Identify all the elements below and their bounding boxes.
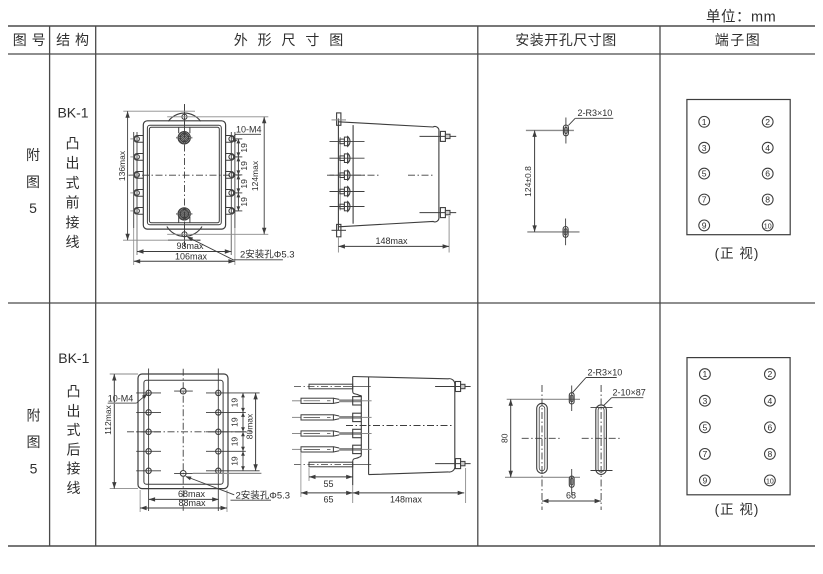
svg-text:2-R3×10: 2-R3×10	[578, 108, 613, 118]
svg-text:图 号: 图 号	[13, 32, 46, 48]
svg-text:9: 9	[703, 476, 708, 486]
svg-text:10: 10	[764, 224, 772, 231]
svg-text:7: 7	[702, 195, 707, 205]
svg-text:安装开孔尺寸图: 安装开孔尺寸图	[515, 32, 617, 48]
svg-text:124±0.8: 124±0.8	[523, 166, 533, 197]
svg-text:1: 1	[703, 369, 708, 379]
svg-text:136max: 136max	[117, 150, 127, 181]
svg-text:3: 3	[702, 143, 707, 153]
svg-text:5: 5	[702, 169, 707, 179]
svg-text:5: 5	[30, 461, 38, 477]
svg-text:2安装孔Φ5.3: 2安装孔Φ5.3	[240, 249, 295, 261]
svg-text:线: 线	[67, 480, 81, 496]
svg-text:出: 出	[66, 155, 80, 171]
svg-text:4: 4	[768, 396, 773, 406]
svg-text:19: 19	[239, 143, 249, 153]
svg-text:112max: 112max	[103, 404, 113, 434]
svg-text:附: 附	[27, 408, 41, 424]
svg-text:单位：mm: 单位：mm	[706, 9, 776, 26]
svg-text:(正 视): (正 视)	[715, 246, 760, 261]
svg-text:凸: 凸	[67, 384, 81, 400]
svg-text:80: 80	[499, 433, 509, 443]
svg-text:10-M4: 10-M4	[108, 394, 134, 404]
svg-text:端子图: 端子图	[715, 32, 762, 48]
svg-text:19: 19	[230, 398, 240, 408]
svg-text:88max: 88max	[178, 498, 206, 508]
svg-text:BK-1: BK-1	[57, 105, 88, 121]
svg-text:接: 接	[67, 461, 81, 477]
svg-text:6: 6	[765, 169, 770, 179]
svg-text:前: 前	[66, 195, 80, 211]
svg-text:10-M4: 10-M4	[236, 124, 262, 134]
svg-text:7: 7	[703, 449, 708, 459]
svg-text:图: 图	[27, 434, 41, 450]
svg-text:19: 19	[239, 197, 249, 207]
svg-text:线: 线	[66, 234, 80, 250]
svg-text:2: 2	[768, 369, 773, 379]
svg-text:98max: 98max	[176, 241, 204, 251]
svg-text:3: 3	[703, 396, 708, 406]
svg-text:9: 9	[702, 221, 707, 231]
svg-text:BK-1: BK-1	[58, 350, 89, 366]
svg-text:8: 8	[768, 449, 773, 459]
svg-text:1: 1	[702, 117, 707, 127]
svg-text:106max: 106max	[175, 251, 208, 261]
svg-text:68: 68	[566, 490, 576, 500]
svg-text:6: 6	[768, 422, 773, 432]
svg-text:19: 19	[230, 417, 240, 427]
svg-text:65: 65	[323, 495, 333, 505]
svg-text:124max: 124max	[250, 160, 260, 191]
svg-text:4: 4	[765, 143, 770, 153]
svg-text:55: 55	[323, 479, 333, 489]
svg-text:图: 图	[26, 174, 40, 190]
svg-text:出: 出	[67, 403, 81, 419]
svg-text:5: 5	[703, 422, 708, 432]
svg-text:2-10×87: 2-10×87	[613, 388, 646, 398]
svg-text:5: 5	[29, 200, 37, 216]
svg-text:(正 视): (正 视)	[715, 502, 760, 517]
svg-text:19: 19	[239, 179, 249, 189]
svg-text:2: 2	[765, 117, 770, 127]
svg-text:148max: 148max	[375, 236, 408, 246]
svg-text:附: 附	[26, 147, 40, 163]
svg-text:2安装孔Φ5.3: 2安装孔Φ5.3	[236, 490, 291, 502]
svg-text:式: 式	[66, 175, 80, 191]
svg-text:8: 8	[765, 195, 770, 205]
svg-text:2-R3×10: 2-R3×10	[588, 367, 623, 377]
svg-text:19: 19	[230, 437, 240, 447]
svg-text:结 构: 结 构	[56, 32, 89, 48]
svg-text:19: 19	[239, 161, 249, 171]
svg-text:10: 10	[766, 479, 774, 486]
svg-text:19: 19	[230, 456, 240, 466]
svg-text:后: 后	[67, 441, 81, 457]
svg-text:外 形 尺 寸 图: 外 形 尺 寸 图	[234, 32, 347, 48]
svg-text:接: 接	[66, 214, 80, 230]
svg-text:式: 式	[67, 422, 81, 438]
svg-text:凸: 凸	[66, 136, 80, 152]
svg-text:80max: 80max	[245, 413, 255, 439]
svg-text:148max: 148max	[390, 495, 423, 505]
